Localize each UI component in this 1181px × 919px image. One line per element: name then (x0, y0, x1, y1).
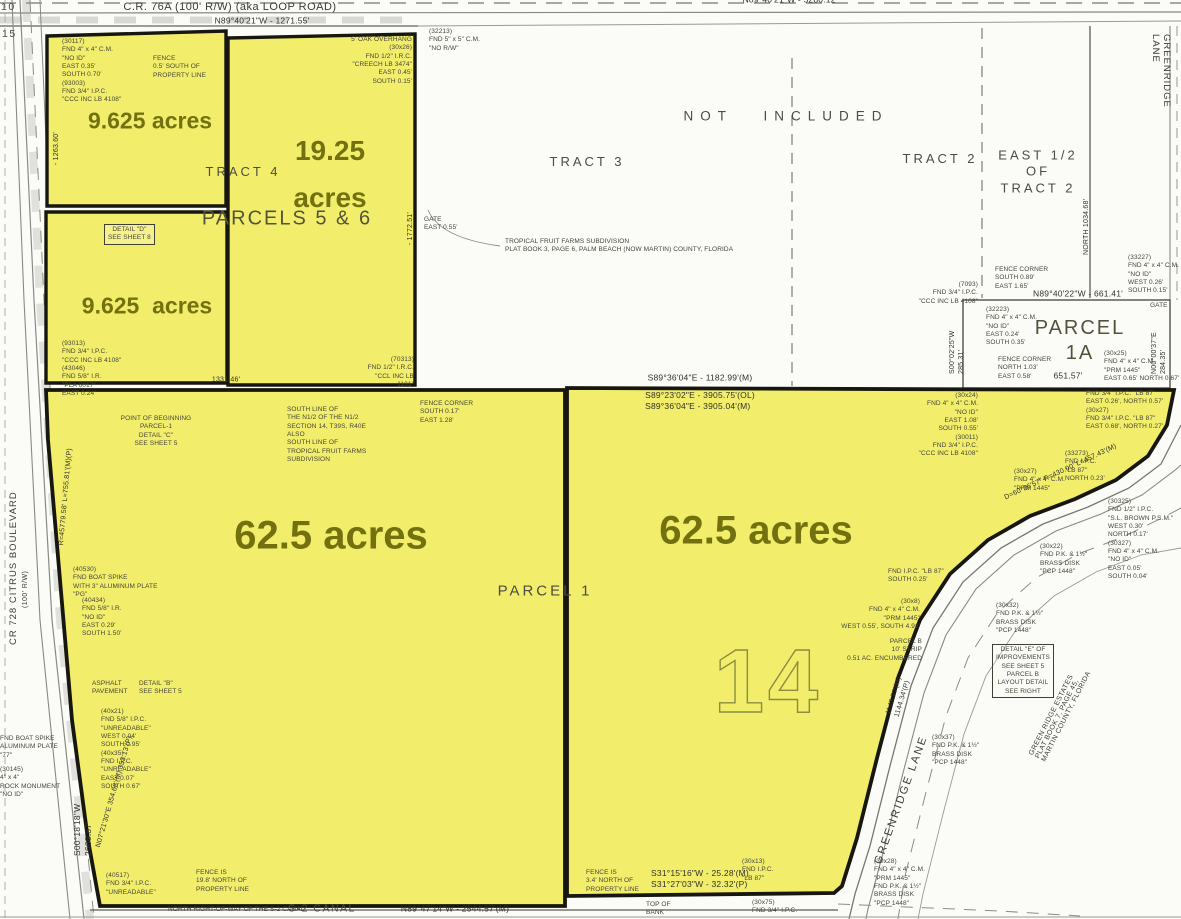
label-cr-728-rw: (100' R/W) (22, 571, 29, 608)
dim-2544: N89°47'14"W - 2544.57'(M) (401, 903, 509, 914)
note-top-of-bank: TOP OF BANK (646, 901, 671, 918)
dim-3905: S89°23'02"E - 3905.75'(OL) S89°36'04"E -… (645, 390, 755, 412)
note-30x27-prm: (30x27) FND 4" x 4" C.M. "PRM 1445" (1014, 468, 1065, 493)
note-40517: (40517) FND 3/4" I.P.C. "UNREADABLE" (106, 872, 156, 897)
label-tract-2: TRACT 2 (903, 151, 978, 167)
note-canal-row: NORTH RIGHT-OF-WAY OF THE S-2 CANAL (168, 906, 304, 914)
note-32213: (32213) FND 5" x 5" C.M. "NO R/W" (429, 28, 480, 53)
note-fence-north: FENCE 0.5' SOUTH OF PROPERTY LINE (153, 55, 206, 80)
note-70313: (70313) FND 1/2" I.R.C. "CCL INC LB 1101… (358, 356, 414, 389)
dim-1a-west: S00°02'25"W 285.31' (948, 331, 966, 374)
note-fence-34: FENCE IS 3.4' NORTH OF PROPERTY LINE (586, 869, 639, 894)
note-lb87-south: FND I.P.C. "LB 87" SOUTH 0.25' (888, 568, 944, 585)
dim-1182: S89°36'04"E - 1182.99'(M) (648, 372, 753, 383)
note-7093: (7093) FND 3/4" I.P.C. "CCC INC LB 4108" (908, 281, 978, 306)
note-30325: (30325) FND 1/2" I.P.C. "S.L. BROWN P.S.… (1108, 498, 1173, 581)
label-greenridge-lane-north: GREENRIDGE LANE (1150, 34, 1172, 108)
note-gate-1a: GATE (1150, 302, 1168, 310)
acreage-parcel1-west: 62.5 acres (234, 514, 428, 559)
note-boat-spike-west: FND BOAT SPIKE ALUMINUM PLATE "77" (0, 735, 58, 760)
dim-north-boundary: N89°40'21"W - 1271.55' (215, 15, 310, 26)
label-parcel-1: PARCEL 1 (498, 583, 593, 602)
note-40434: (40434) FND 5/8" I.R. "NO ID" EAST 0.29'… (82, 597, 122, 639)
label-not-included: NOT INCLUDED (683, 109, 888, 126)
note-detail-e: DETAIL "E" OF IMPROVEMENTS SEE SHEET 5 P… (992, 644, 1054, 698)
dim-1331: 1331.46' (212, 375, 240, 384)
label-parcels-5-6: PARCELS 5 & 6 (202, 207, 372, 232)
note-30x32: (30x32) FND P.K. & 1½" BRASS DISK "PCP 1… (996, 602, 1043, 635)
acreage-parcel5-south: 9.625 acres (82, 293, 212, 320)
note-30x22: (30x22) FND P.K. & 1½" BRASS DISK "PCP 1… (1040, 543, 1087, 576)
dim-north-1034: NORTH 1034.68' (1082, 199, 1091, 255)
acreage-parcel1-east: 62.5 acres (659, 509, 853, 554)
note-fence-corner-mid: FENCE CORNER SOUTH 0.17' EAST 1.28' (420, 400, 473, 425)
note-33273: (33273) FND I.P.C. "LB 87" NORTH 0.23' (1065, 450, 1105, 483)
note-parcel-b-strip: PARCEL B 10' STRIP 0.51 AC. ENCUMBERED (846, 638, 922, 663)
note-tropical-fruit: TROPICAL FRUIT FARMS SUBDIVISION PLAT BO… (505, 238, 733, 255)
plat-map: 14 9.625 acres19.25acres9.625 acres62.5 … (0, 0, 1181, 919)
label-tract-3: TRACT 3 (550, 154, 625, 170)
dim-1263: - 1263.60' (52, 132, 61, 165)
note-rock-monument: (30145) 4" x 4" ROCK MONUMENT "NO ID" (0, 766, 60, 799)
note-30x37: (30x37) FND P.K. & 1½" BRASS DISK "PCP 1… (932, 734, 979, 767)
note-30x28-corner: (30x28) FND 4" x 4" C.M. "PRM 1445" FND … (874, 858, 925, 908)
dim-1145: 1145.77'(M) 1144.34'(P) (884, 676, 913, 718)
label-tract-4: TRACT 4 (206, 164, 281, 180)
note-detail-d: DETAIL "D" SEE SHEET 8 (104, 224, 155, 245)
note-30x13: (30x13) FND I.P.C. "LB 87" (742, 858, 774, 883)
note-30x8: (30x8) FND 4" x 4" C.M. "PRM 1445" WEST … (840, 598, 920, 631)
note-32223: (32223) FND 4" x 4" C.M. "NO ID" EAST 0.… (986, 306, 1037, 348)
label-greenridge-lane-south: GREENRIDGE LANE (872, 734, 930, 866)
note-south-line: SOUTH LINE OF THE N1/2 OF THE N1/2 SECTI… (287, 406, 366, 464)
note-30x24: (30x24) FND 4" x 4" C.M. "NO ID" EAST 1.… (902, 392, 978, 459)
label-section-10: 10 (1, 1, 16, 14)
dim-1772: - 1772.51' (406, 212, 415, 245)
note-point-of-beginning: POINT OF BEGINNING PARCEL-1 DETAIL "C" S… (110, 415, 202, 448)
note-fence-corner-1a-sw: FENCE CORNER NORTH 1.03' EAST 0.58' (998, 356, 1051, 381)
note-oak-overhang: 5' OAK OVERHANG (30x26) FND 1/2" I.R.C. … (330, 36, 412, 86)
dim-section-line: N89°40'21"W - 5280.12' (743, 0, 838, 6)
note-30x75: (30x75) FND 3/4" I.P.C. (752, 899, 797, 916)
annotation-layer: 9.625 acres19.25acres9.625 acres62.5 acr… (0, 0, 1181, 919)
note-40530: (40530) FND BOAT SPIKE WITH 3" ALUMINUM … (73, 566, 158, 599)
note-lb87-ne: FND 3/4" I.P.C. "LB 87" EAST 0.26', NORT… (1086, 390, 1163, 432)
note-asphalt: ASPHALT PAVEMENT (92, 680, 128, 697)
label-east-half-tract-2: EAST 1/2 OF TRACT 2 (998, 148, 1077, 197)
note-93013: (93013) FND 3/4" I.P.C. "CCC INC LB 4108… (62, 340, 121, 398)
note-fence-198: FENCE IS 19.8' NORTH OF PROPERTY LINE (196, 869, 249, 894)
note-monument-nw: (30117) FND 4" x 4" C.M. "NO ID" EAST 0.… (62, 38, 121, 105)
dim-651: 651.57' (1053, 370, 1082, 381)
note-30x25: (30x25) FND 4" x 4" C.M. "PRM 1445" EAST… (1104, 350, 1179, 383)
label-cr-728: CR 728 CITRUS BOULEVARD (8, 491, 19, 645)
acreage-parcel6-line1: 19.25 (295, 135, 365, 167)
label-cr-76a: C.R. 76A (100' R/W) (aka LOOP ROAD) (123, 1, 336, 13)
note-unreadable: (40x21) FND 5/8" I.P.C. "UNREADABLE" WES… (101, 708, 151, 791)
note-fence-corner-1a-nw: FENCE CORNER SOUTH 0.89' EAST 1.65' (995, 266, 1048, 291)
dim-curve-west: R=45779.58' L=755.81'(M)(P) (57, 448, 75, 546)
dim-s31: S31°15'16"W - 25.28'(M) S31°27'03"W - 32… (651, 868, 749, 890)
note-33227: (33227) FND 4" x 4" C.M. "NO ID" WEST 0.… (1128, 254, 1179, 296)
note-detail-b: DETAIL "B" SEE SHEET 5 (139, 680, 182, 697)
note-gate-east: GATE EAST 0.55' (424, 216, 458, 233)
acreage-parcel5-north: 9.625 acres (88, 108, 212, 135)
dim-west-2668: S00°18'18"W 2668.87' (72, 804, 94, 856)
label-section-15: 15 (2, 28, 17, 41)
